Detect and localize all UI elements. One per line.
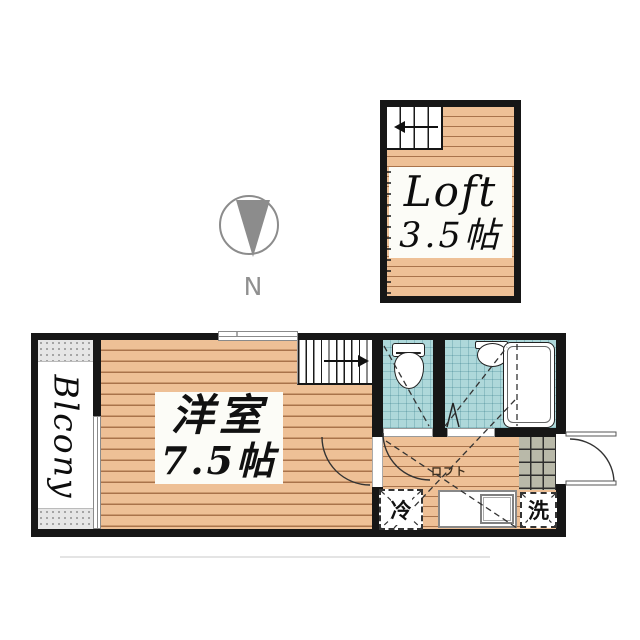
fridge-label: 冷 — [391, 495, 412, 525]
loft-outline-dash-bath — [445, 347, 507, 426]
loft-edge-ticks — [383, 172, 391, 293]
entrance-door-leaf-top — [566, 432, 616, 436]
floorplan-image: Loft 3.5帖 N Blcony — [0, 0, 640, 640]
washer-label: 洗 — [528, 495, 549, 525]
room-door-arc — [322, 437, 370, 485]
loft-outline-dash-hall-b — [394, 400, 515, 528]
toilet-door-arc — [383, 433, 430, 480]
plan-linework — [0, 0, 640, 640]
north-arrow-icon — [236, 200, 270, 257]
loft-stairs-arrowhead — [394, 121, 405, 133]
entrance-door-arc — [570, 439, 614, 483]
entrance-door-leaf-bottom — [566, 481, 616, 485]
stairs-arrowhead — [358, 355, 369, 367]
loft-outline-dash-toilet — [384, 346, 429, 426]
